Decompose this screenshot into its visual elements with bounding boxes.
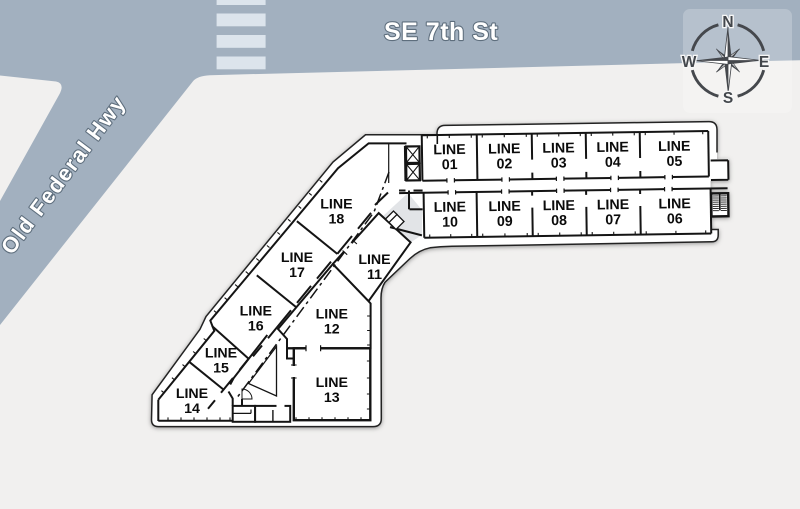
svg-text:LINE: LINE [658,196,691,212]
svg-text:LINE: LINE [597,197,630,213]
svg-text:LINE: LINE [358,252,390,268]
svg-text:10: 10 [442,215,458,231]
svg-text:S: S [723,90,733,107]
svg-text:LINE: LINE [433,142,466,158]
svg-text:14: 14 [184,401,200,417]
svg-text:LINE: LINE [205,346,237,362]
svg-text:07: 07 [605,212,621,228]
svg-text:LINE: LINE [543,198,576,214]
svg-text:LINE: LINE [316,375,348,391]
svg-text:E: E [759,54,769,71]
svg-text:03: 03 [551,155,567,171]
svg-text:W: W [682,54,697,71]
svg-text:18: 18 [329,212,345,228]
svg-text:LINE: LINE [176,386,208,402]
svg-text:06: 06 [667,211,683,227]
svg-text:LINE: LINE [281,250,313,266]
svg-text:13: 13 [324,390,340,406]
svg-text:17: 17 [289,265,305,281]
svg-text:09: 09 [497,214,513,230]
svg-text:16: 16 [248,319,264,335]
svg-text:01: 01 [442,157,458,173]
svg-text:SE 7th St: SE 7th St [384,18,498,46]
svg-text:LINE: LINE [240,304,272,320]
svg-text:LINE: LINE [316,307,348,323]
svg-text:12: 12 [324,322,340,338]
svg-text:LINE: LINE [434,199,467,215]
svg-text:LINE: LINE [320,197,352,213]
svg-text:15: 15 [213,361,229,377]
svg-text:05: 05 [666,154,682,170]
svg-text:LINE: LINE [596,139,629,155]
svg-text:LINE: LINE [488,141,521,157]
svg-text:LINE: LINE [542,140,575,156]
svg-text:LINE: LINE [658,139,691,155]
svg-text:LINE: LINE [488,199,521,215]
svg-text:08: 08 [551,213,567,229]
svg-text:04: 04 [605,155,621,171]
svg-text:11: 11 [367,267,382,283]
svg-text:N: N [722,14,733,31]
svg-text:02: 02 [496,156,512,172]
